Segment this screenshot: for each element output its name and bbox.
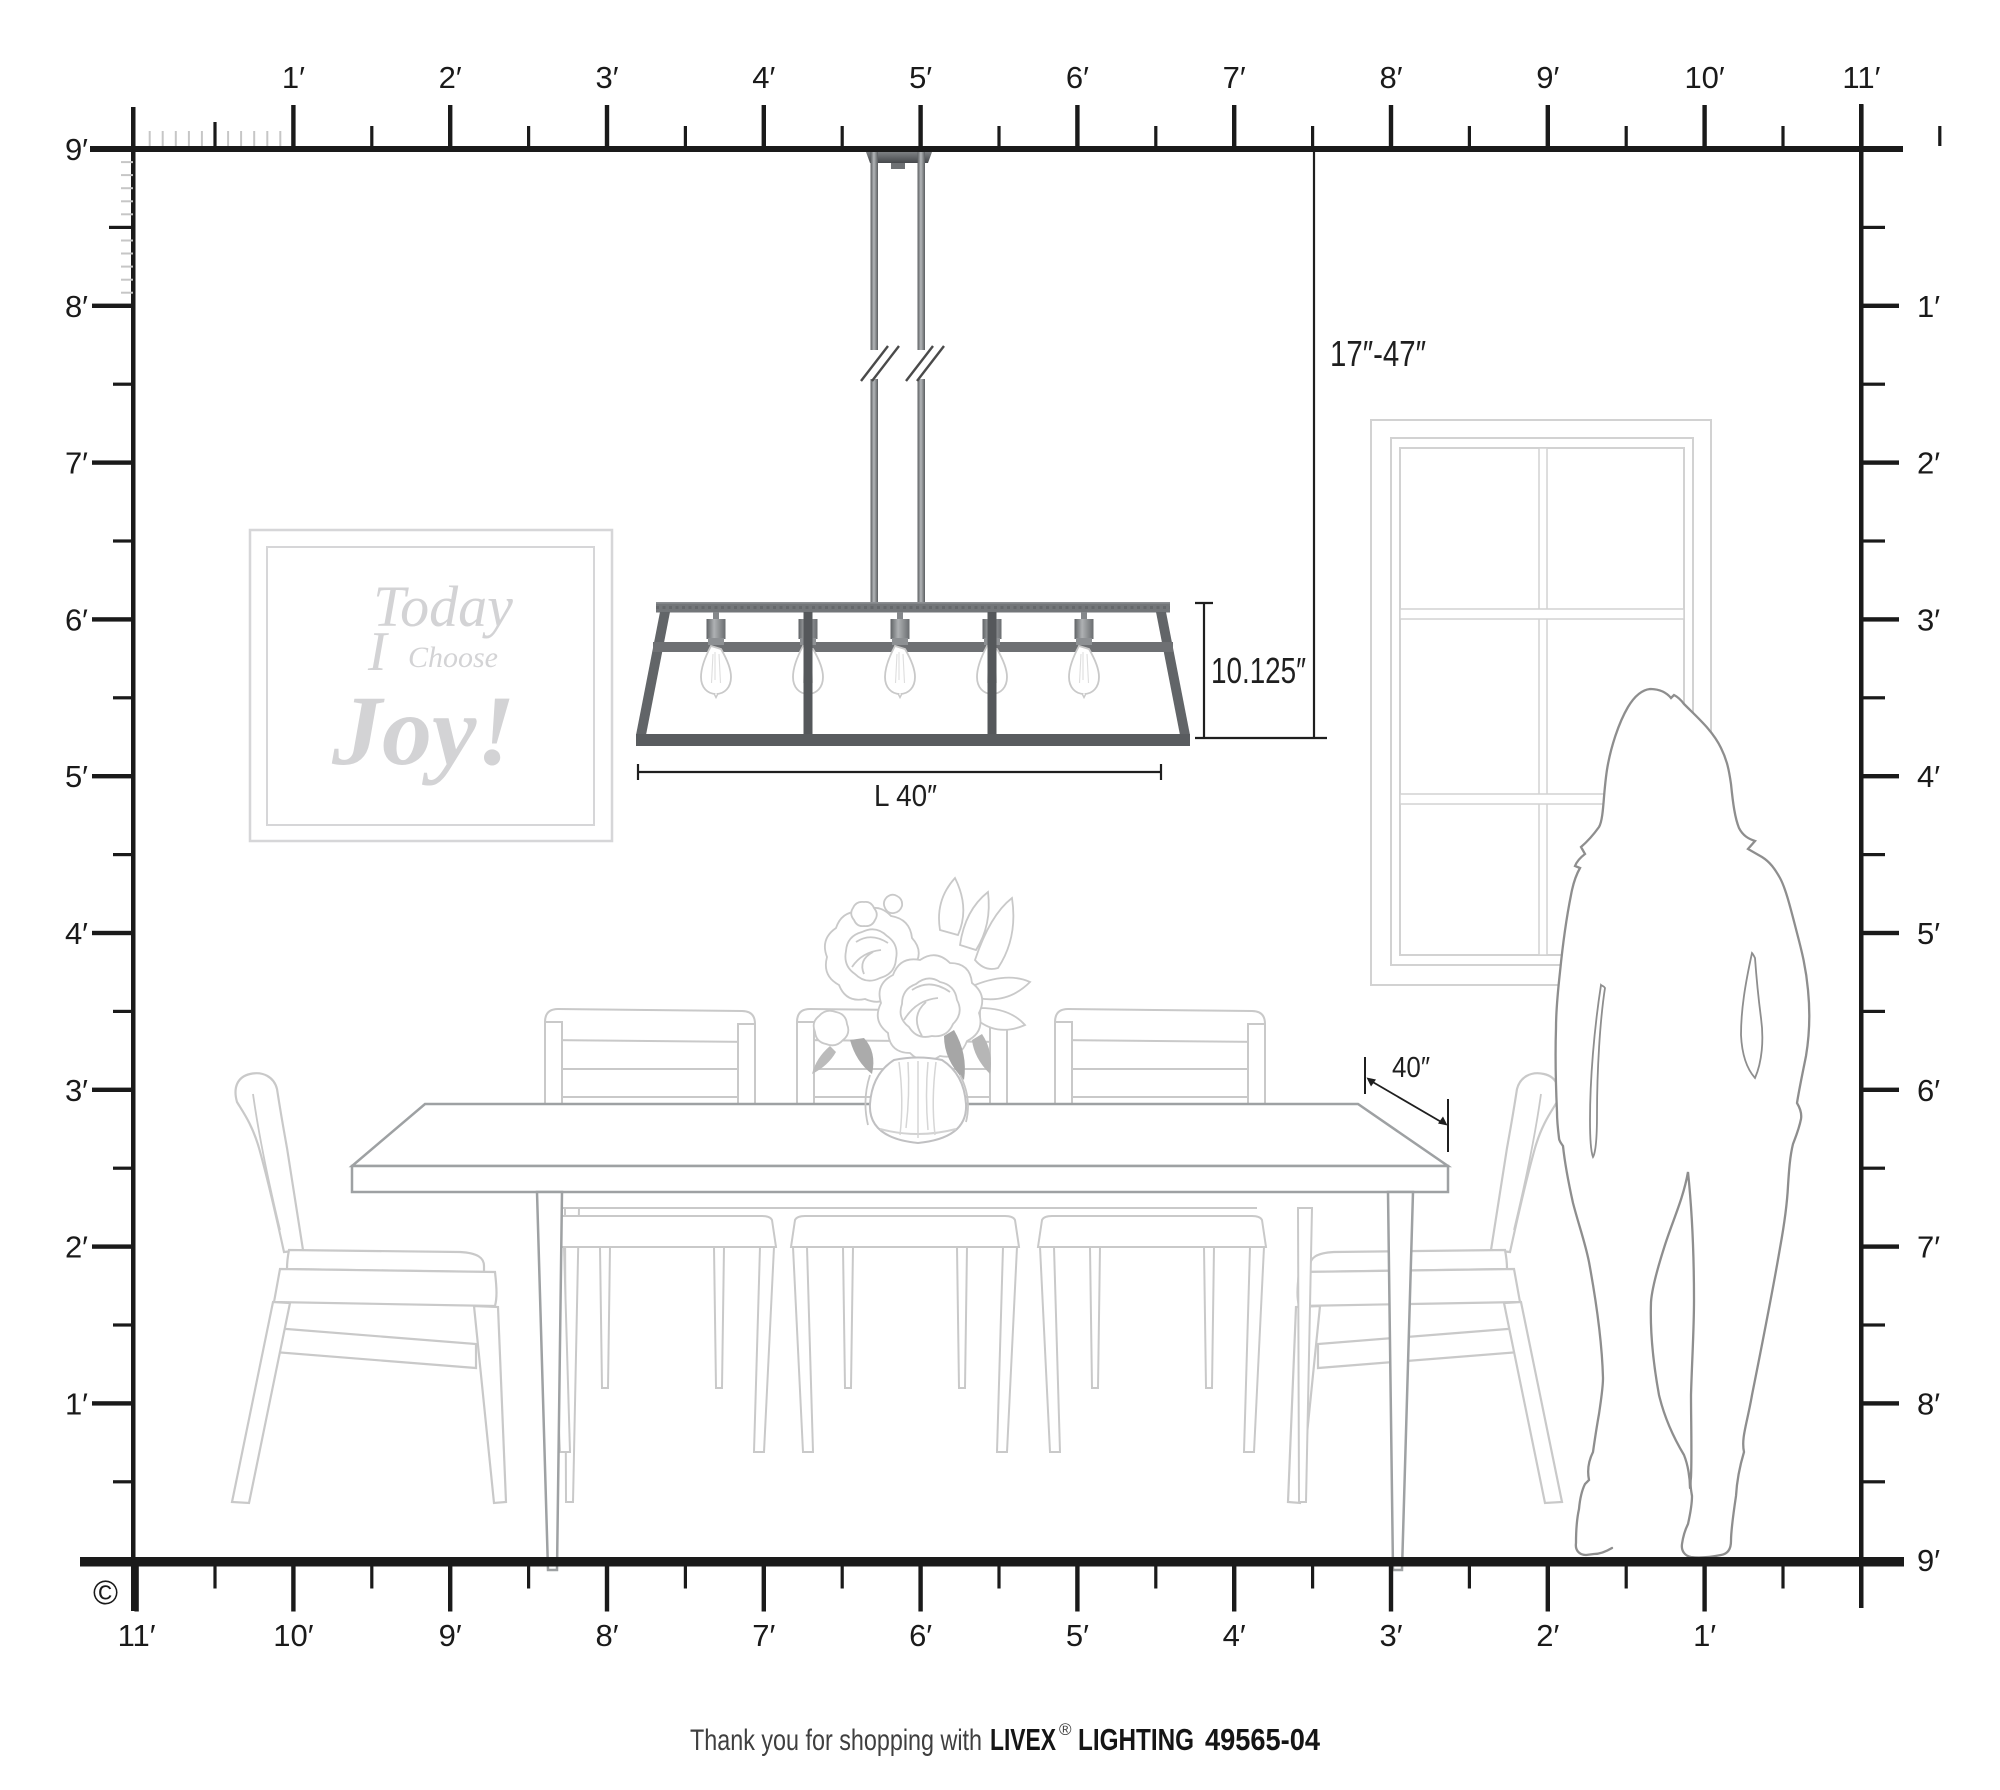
svg-text:8′: 8′ [65,289,88,324]
svg-text:3′: 3′ [1379,1618,1402,1653]
svg-text:10′: 10′ [1684,60,1724,95]
svg-text:5′: 5′ [1917,916,1940,951]
svg-text:6′: 6′ [909,1618,932,1653]
svg-text:9′: 9′ [65,132,88,167]
svg-text:4′: 4′ [752,60,775,95]
svg-text:8′: 8′ [595,1618,618,1653]
svg-text:2′: 2′ [439,60,462,95]
svg-text:6′: 6′ [65,602,88,637]
svg-text:7′: 7′ [1223,60,1246,95]
svg-text:Choose: Choose [408,641,498,674]
svg-text:3′: 3′ [65,1073,88,1108]
svg-text:4′: 4′ [1223,1618,1246,1653]
svg-text:2′: 2′ [1536,1618,1559,1653]
svg-text:Joy!: Joy! [331,675,515,786]
svg-text:5′: 5′ [65,759,88,794]
svg-text:8′: 8′ [1379,60,1402,95]
svg-text:1′: 1′ [1917,289,1940,324]
svg-text:1′: 1′ [1693,1618,1716,1653]
svg-text:5′: 5′ [909,60,932,95]
svg-text:8′: 8′ [1917,1386,1940,1421]
svg-text:10.125″: 10.125″ [1211,650,1306,691]
svg-text:3′: 3′ [595,60,618,95]
svg-text:7′: 7′ [752,1618,775,1653]
svg-text:17″-47″: 17″-47″ [1330,333,1426,374]
svg-text:6′: 6′ [1917,1073,1940,1108]
svg-text:2′: 2′ [65,1230,88,1265]
svg-text:Thank you for shopping with: Thank you for shopping with [690,1724,982,1757]
svg-text:Today: Today [373,574,513,639]
svg-text:LIGHTING: LIGHTING [1078,1722,1194,1757]
svg-text:LIVEX: LIVEX [990,1722,1056,1757]
svg-text:©: © [93,1574,118,1612]
svg-text:2′: 2′ [1917,446,1940,481]
svg-text:L 40″: L 40″ [874,778,937,813]
svg-text:6′: 6′ [1066,60,1089,95]
svg-text:11′: 11′ [1842,60,1880,95]
svg-text:4′: 4′ [1917,759,1940,794]
svg-text:10′: 10′ [273,1618,313,1653]
svg-text:7′: 7′ [1917,1230,1940,1265]
svg-text:1′: 1′ [65,1386,88,1421]
svg-text:1′: 1′ [282,60,305,95]
svg-text:5′: 5′ [1066,1618,1089,1653]
svg-text:9′: 9′ [1917,1543,1940,1578]
svg-text:40″: 40″ [1392,1052,1430,1084]
svg-text:9′: 9′ [439,1618,462,1653]
svg-text:I: I [367,621,389,683]
svg-text:49565-04: 49565-04 [1205,1722,1321,1757]
svg-text:9′: 9′ [1536,60,1559,95]
svg-text:®: ® [1059,1720,1072,1739]
svg-text:11′: 11′ [118,1618,156,1653]
svg-text:4′: 4′ [65,916,88,951]
svg-text:7′: 7′ [65,446,88,481]
svg-text:3′: 3′ [1917,602,1940,637]
